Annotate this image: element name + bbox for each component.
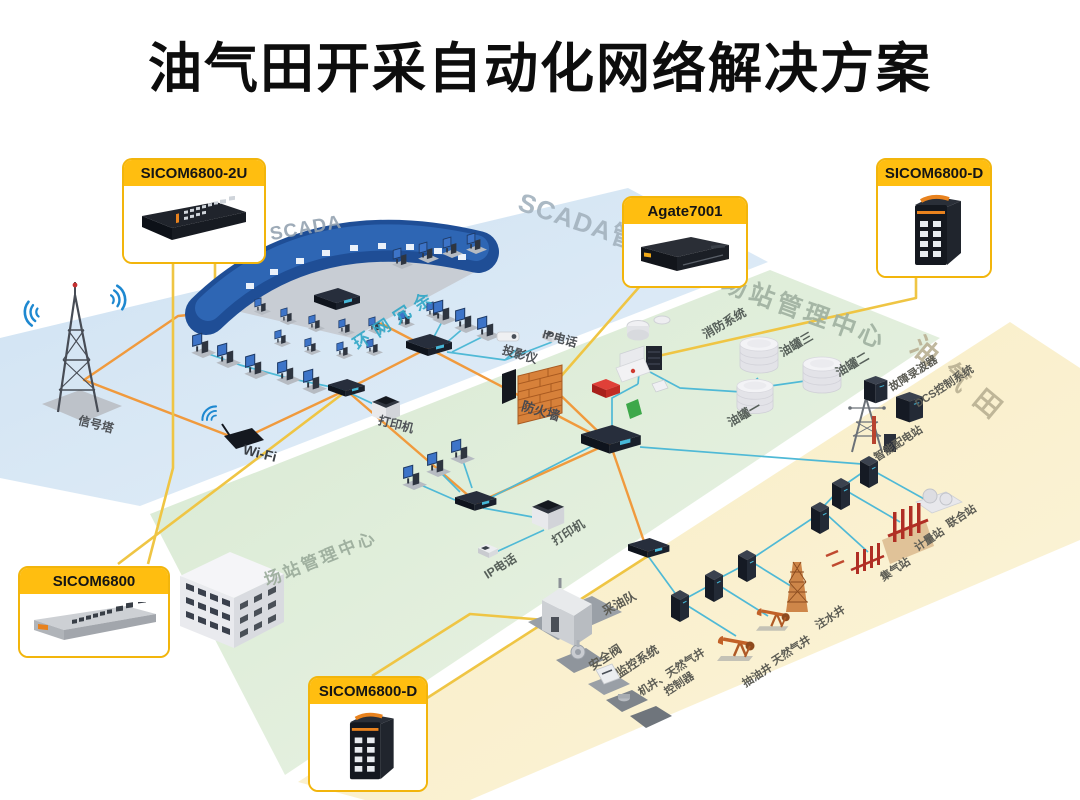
- gateway-device-image: [633, 231, 737, 279]
- rack-switch-2u-image: [134, 196, 254, 252]
- fault-recorder-cabinet: [864, 376, 887, 403]
- wifi-arcs-left-icon: [23, 301, 39, 327]
- callout-sicom6800: SICOM6800: [18, 566, 170, 658]
- callout-agate7001: Agate7001: [622, 196, 748, 288]
- callout-sicom6800-d-bottom-title: SICOM6800-D: [310, 678, 426, 704]
- projector-device: [497, 332, 519, 341]
- callout-sicom6800-d-bottom: SICOM6800-D: [308, 676, 428, 792]
- din-rail-switch-image: [899, 191, 969, 271]
- oil-tank-3: [740, 337, 778, 373]
- callout-sicom6800-2u: SICOM6800-2U: [122, 158, 266, 264]
- din-rail-switch-image-2: [333, 709, 403, 785]
- rack-switch-1u-image: [28, 602, 160, 648]
- callout-sicom6800-title: SICOM6800: [20, 568, 168, 594]
- callout-sicom6800-d-top: SICOM6800-D: [876, 158, 992, 278]
- callout-sicom6800-d-top-title: SICOM6800-D: [878, 160, 990, 186]
- callout-agate7001-title: Agate7001: [624, 198, 746, 224]
- callout-sicom6800-2u-title: SICOM6800-2U: [124, 160, 264, 186]
- wifi-arcs-right-icon: [109, 285, 127, 311]
- diagram-canvas: 油气田开采自动化网络解决方案: [0, 0, 1080, 800]
